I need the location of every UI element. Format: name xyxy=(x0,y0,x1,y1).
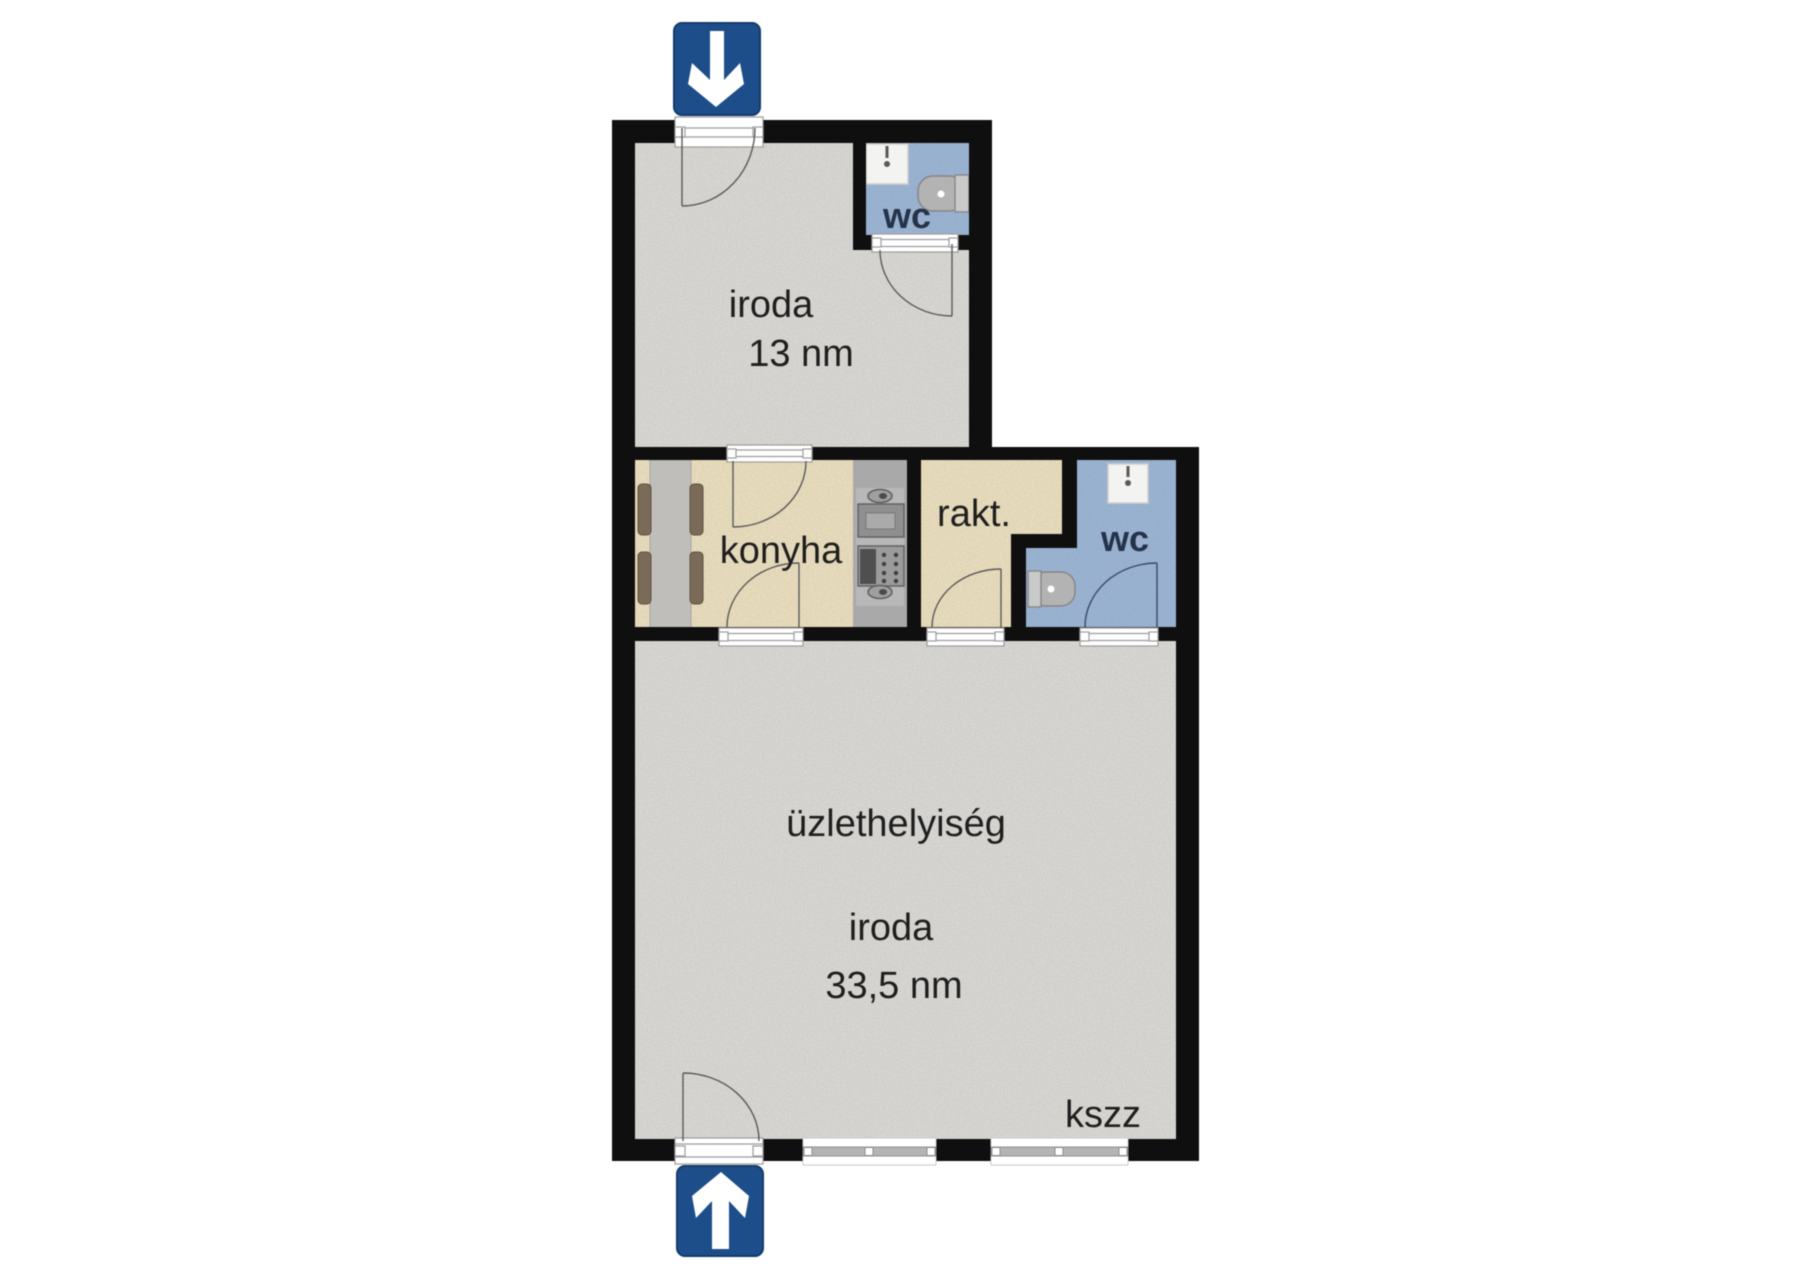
svg-text:iroda: iroda xyxy=(729,284,814,326)
svg-text:rakt.: rakt. xyxy=(937,493,1011,535)
svg-text:33,5 nm: 33,5 nm xyxy=(825,965,962,1007)
svg-text:konyha: konyha xyxy=(720,530,843,572)
svg-text:üzlethelyiség: üzlethelyiség xyxy=(786,803,1006,845)
svg-text:wc: wc xyxy=(1100,518,1149,559)
svg-text:kszz: kszz xyxy=(1065,1094,1141,1136)
svg-text:wc: wc xyxy=(882,195,931,236)
svg-text:13 nm: 13 nm xyxy=(748,333,854,375)
svg-text:iroda: iroda xyxy=(849,907,934,949)
